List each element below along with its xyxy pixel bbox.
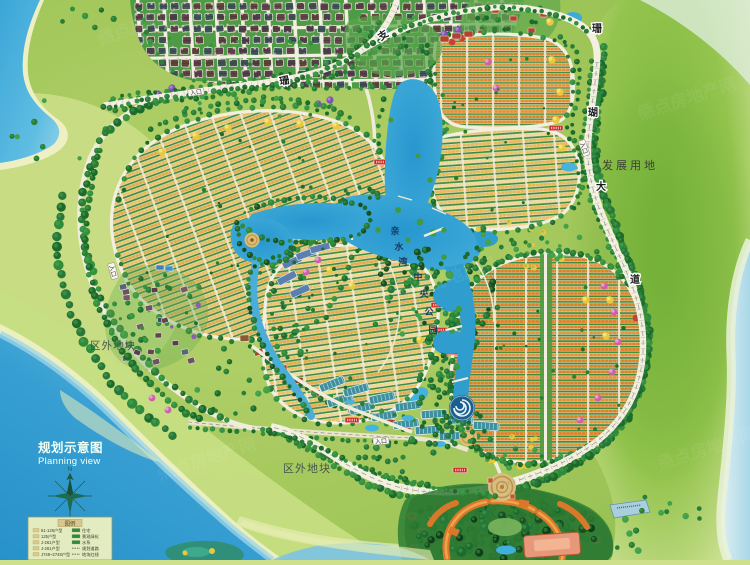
svg-text:地块红线: 地块红线 (82, 551, 100, 558)
svg-text:规划道路: 规划道路 (82, 545, 100, 552)
svg-text:图例: 图例 (64, 520, 76, 528)
svg-text:住宅: 住宅 (82, 527, 90, 533)
svg-text:J-261户型: J-261户型 (41, 539, 60, 546)
svg-text:区外地块: 区外地块 (283, 462, 331, 475)
svg-text:景观绿化: 景观绿化 (82, 533, 100, 540)
svg-text:道: 道 (630, 273, 640, 286)
svg-text:亲: 亲 (390, 225, 399, 236)
svg-text:J748~2748户型: J748~2748户型 (41, 551, 70, 558)
svg-text:125户型: 125户型 (41, 533, 56, 540)
svg-text:水系: 水系 (82, 539, 90, 545)
svg-text:公: 公 (424, 307, 433, 317)
svg-text:Planning view: Planning view (38, 456, 101, 467)
svg-text:区外地块: 区外地块 (90, 339, 136, 352)
svg-text:珊: 珊 (279, 74, 291, 88)
svg-text:规划示意图: 规划示意图 (38, 440, 103, 455)
svg-text:瑚: 瑚 (588, 106, 598, 119)
svg-text:61-125户型: 61-125户型 (41, 527, 62, 534)
svg-text:发展用地: 发展用地 (602, 158, 658, 172)
svg-text:N: N (68, 467, 72, 473)
svg-text:园: 园 (428, 325, 437, 335)
svg-text:水: 水 (394, 241, 404, 252)
svg-text:入口: 入口 (375, 438, 387, 446)
svg-text:珊: 珊 (592, 23, 602, 35)
svg-text:J-261户型: J-261户型 (41, 545, 60, 552)
svg-text:湾: 湾 (398, 256, 407, 267)
svg-text:大: 大 (596, 180, 606, 193)
